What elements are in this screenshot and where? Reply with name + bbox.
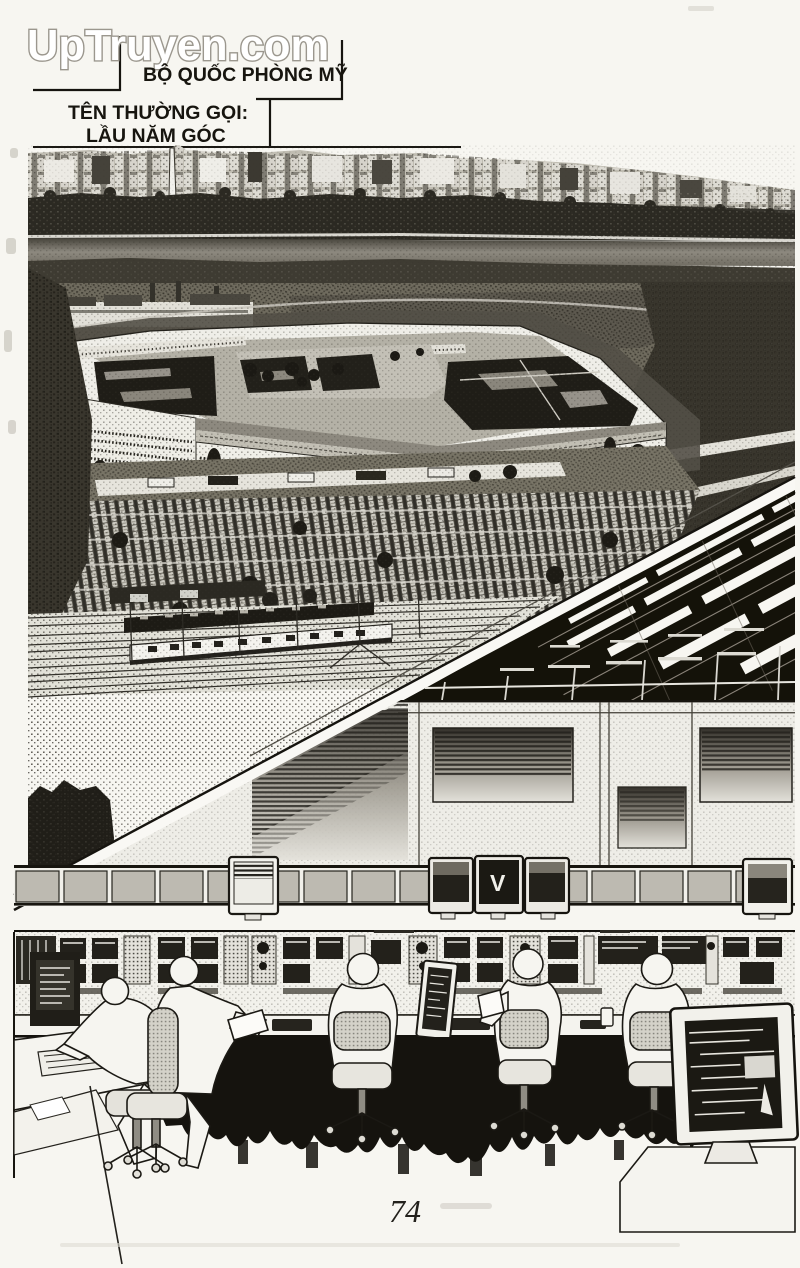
svg-text:TÊN THƯỜNG GỌI:: TÊN THƯỜNG GỌI: <box>68 100 248 124</box>
svg-text:UpTruyen.com: UpTruyen.com <box>27 22 329 70</box>
svg-text:BỘ QUỐC PHÒNG MỸ: BỘ QUỐC PHÒNG MỸ <box>143 62 348 86</box>
svg-text:LẦU NĂM GÓC: LẦU NĂM GÓC <box>86 123 226 147</box>
svg-text:V: V <box>490 870 506 896</box>
svg-text:74: 74 <box>389 1193 421 1229</box>
